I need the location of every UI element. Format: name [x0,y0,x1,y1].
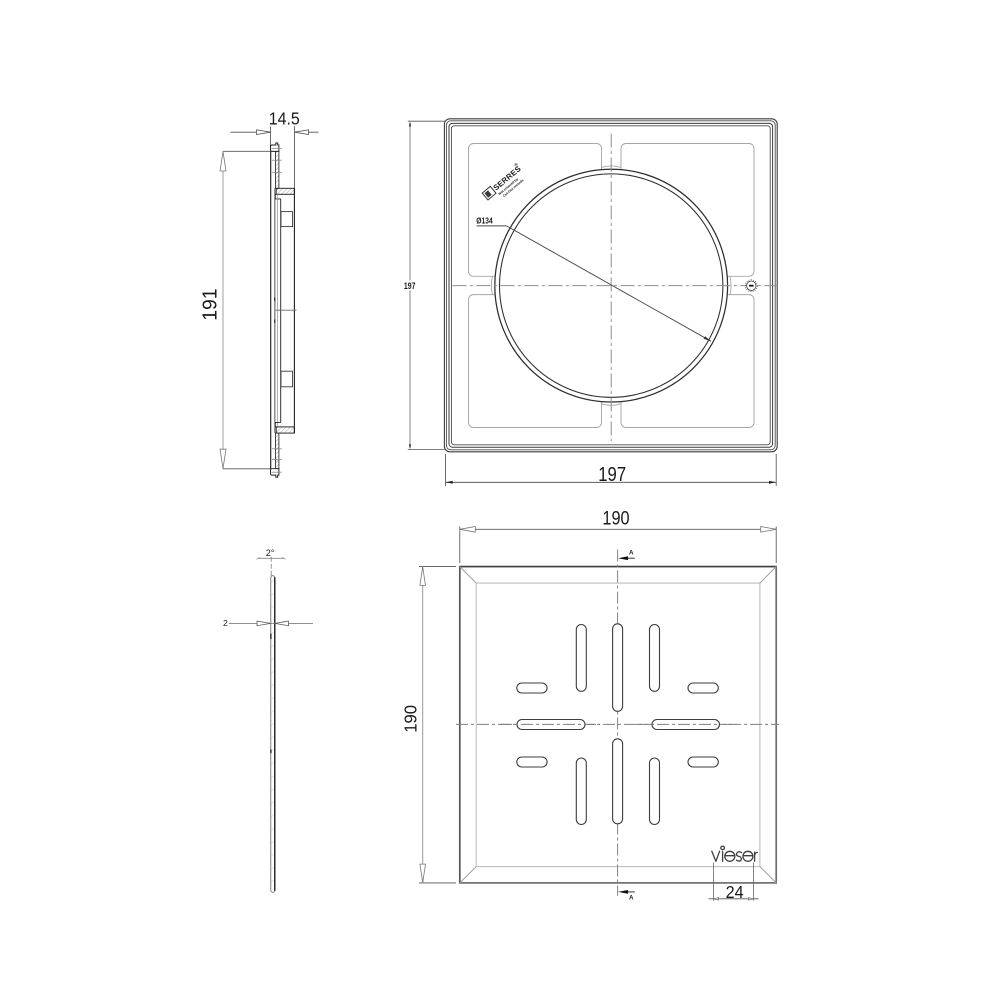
svg-text:24: 24 [726,882,744,902]
svg-text:2°: 2° [266,548,275,558]
svg-text:14.5: 14.5 [269,108,300,128]
svg-text:A: A [629,895,634,902]
svg-text:2: 2 [223,618,228,628]
svg-text:A: A [629,549,634,556]
svg-text:190: 190 [602,509,629,530]
svg-text:197: 197 [404,281,416,291]
svg-text:190: 190 [401,705,421,733]
svg-text:197: 197 [598,464,626,486]
svg-text:191: 191 [200,288,222,320]
svg-text:Ø134: Ø134 [476,216,493,226]
